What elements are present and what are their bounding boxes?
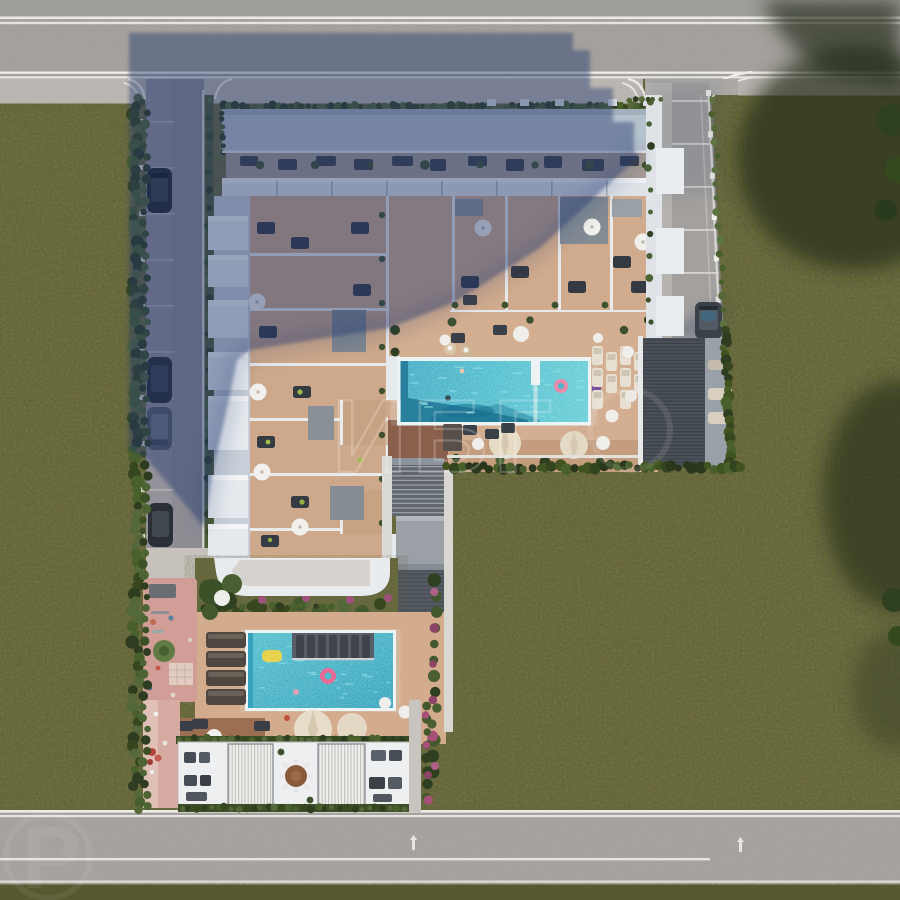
svg-text:Р: Р bbox=[22, 808, 81, 900]
svg-text:ИБГ: ИБГ bbox=[332, 379, 558, 495]
